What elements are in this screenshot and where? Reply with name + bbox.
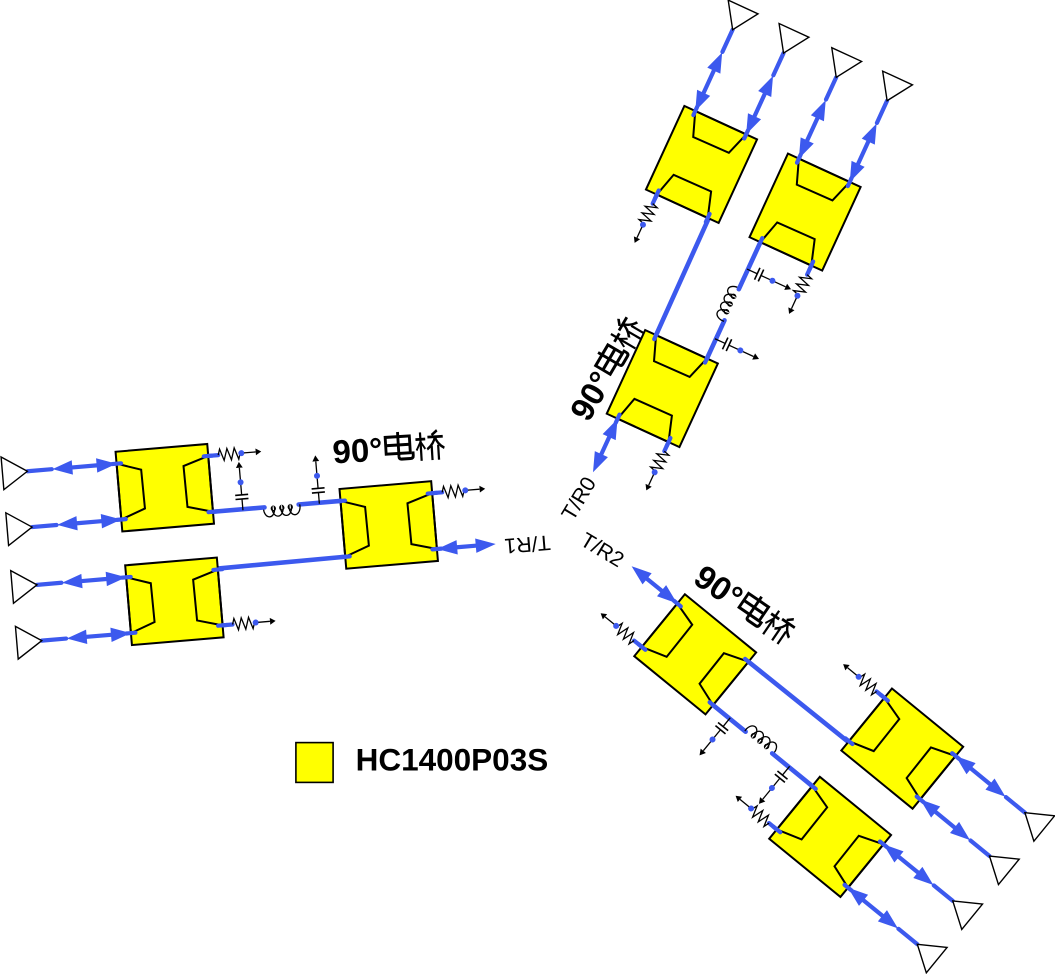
svg-text:HC1400P03S: HC1400P03S: [356, 742, 549, 778]
svg-text:90°: 90°: [331, 431, 383, 471]
svg-text:T/R1: T/R1: [503, 530, 551, 558]
